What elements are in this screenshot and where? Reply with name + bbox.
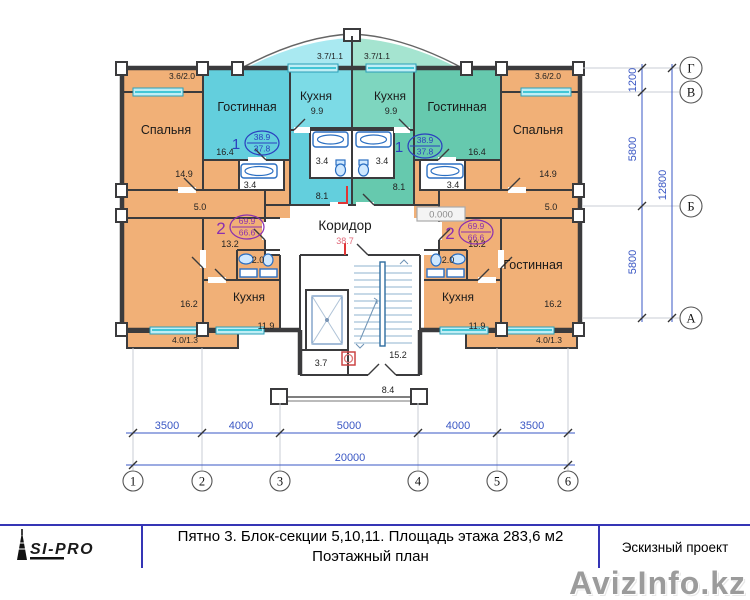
- svg-text:2: 2: [445, 224, 454, 243]
- dim-1200: 1200: [627, 68, 639, 92]
- hall-top-right-area: 8.1: [393, 182, 406, 192]
- svg-text:37.8: 37.8: [417, 147, 434, 157]
- svg-text:69.9: 69.9: [468, 221, 485, 231]
- kitchen-top-left-label: Кухня: [300, 89, 332, 103]
- grid-row-g: Г: [687, 62, 694, 76]
- svg-text:69.9: 69.9: [239, 216, 256, 226]
- living-bottom-right-area: 16.2: [544, 299, 562, 309]
- bathtub-left-apartment: [241, 164, 277, 178]
- svg-text:2: 2: [216, 219, 225, 238]
- hall-small-left-area: 5.0: [194, 202, 207, 212]
- grid-row-v: В: [687, 86, 695, 100]
- dim-3500-1: 3500: [155, 420, 179, 432]
- title-block: SI-PRO Пятно 3. Блок-секции 5,10,11. Пло…: [0, 524, 750, 568]
- grid-row-b: Б: [687, 200, 694, 214]
- grid-col-6: 6: [565, 475, 571, 489]
- svg-text:38.9: 38.9: [254, 132, 271, 142]
- level-mark: 0.000: [417, 207, 465, 221]
- grid-row-a: А: [686, 312, 695, 326]
- svg-text:1: 1: [395, 139, 403, 156]
- title-line-1: Пятно 3. Блок-секции 5,10,11. Площадь эт…: [178, 527, 564, 547]
- watermark: AvizInfo.kz: [569, 565, 746, 600]
- porch-column-left: [271, 389, 287, 404]
- svg-text:66.6: 66.6: [468, 233, 485, 243]
- dim-4000-1: 4000: [229, 420, 253, 432]
- kitchen-top-right-label: Кухня: [374, 89, 406, 103]
- right-dimensions: 1200 5800 5800 12800 Г В Б А: [627, 57, 702, 329]
- balcony-corner-right-area: 3.6/2.0: [535, 71, 561, 81]
- kitchen-bottom-right-label: Кухня: [442, 290, 474, 304]
- bath-small-left-area: 2.0: [252, 255, 265, 265]
- bath-left-area: 3.4: [244, 180, 257, 190]
- grid-col-1: 1: [130, 475, 136, 489]
- drawing-title: Пятно 3. Блок-секции 5,10,11. Площадь эт…: [143, 526, 600, 568]
- kitchen-top-right-area: 9.9: [385, 106, 398, 116]
- company-logo: SI-PRO: [0, 526, 143, 568]
- grid-row-markers: Г В Б А: [680, 57, 702, 329]
- porch-column-right: [411, 389, 427, 404]
- wc-center-left-area: 3.4: [316, 156, 329, 166]
- bath-right-area: 3.4: [447, 180, 460, 190]
- chute-area: 3.7: [315, 358, 328, 368]
- dim-5800-2: 5800: [627, 250, 639, 274]
- toilet-center-right: [359, 160, 369, 176]
- bathtub-right-apartment: [427, 164, 463, 178]
- toilet-center-left: [336, 160, 346, 176]
- bathtub-center-left: [313, 132, 348, 147]
- svg-text:38.9: 38.9: [417, 135, 434, 145]
- wc-center-right-area: 3.4: [376, 156, 389, 166]
- entrance-porch: [271, 389, 427, 404]
- living-top-right-area: 16.4: [468, 147, 486, 157]
- living-bottom-right-label: Гостинная: [503, 258, 562, 272]
- svg-text:1: 1: [232, 136, 240, 153]
- si-pro-logo: SI-PRO: [6, 529, 136, 565]
- project-type: Эскизный проект: [600, 526, 750, 568]
- hall-mid-left-area: 13.2: [221, 239, 239, 249]
- dim-total-20000: 20000: [335, 452, 366, 464]
- grid-col-2: 2: [199, 475, 205, 489]
- living-bottom-left-area: 16.2: [180, 299, 198, 309]
- hall-small-right-area: 5.0: [545, 202, 558, 212]
- svg-text:37.8: 37.8: [254, 144, 271, 154]
- dim-3500-2: 3500: [520, 420, 544, 432]
- bedroom-left-label: Спальня: [141, 123, 191, 137]
- svg-text:0.000: 0.000: [429, 210, 453, 221]
- tower-icon: [17, 532, 27, 560]
- floor-plan: Спальня Спальня 14.9 14.9 3.6/2.0 3.6/2.…: [0, 0, 750, 524]
- kitchen-bottom-left-label: Кухня: [233, 290, 265, 304]
- dim-total-12800: 12800: [657, 170, 669, 201]
- bedroom-right-label: Спальня: [513, 123, 563, 137]
- balcony-top-right-area: 3.7/1.1: [364, 51, 390, 61]
- stair-core: [306, 186, 412, 365]
- corridor-label: Коридор: [318, 218, 371, 233]
- balcony-bottom-right-area: 4.0/1.3: [536, 335, 562, 345]
- hall-top-left-area: 8.1: [316, 191, 329, 201]
- bedroom-left-area: 14.9: [175, 169, 193, 179]
- grid-col-4: 4: [415, 475, 422, 489]
- grid-column-markers: 1 2 3 4 5 6: [123, 471, 578, 491]
- balcony-corner-left-area: 3.6/2.0: [169, 71, 195, 81]
- grid-col-3: 3: [277, 475, 283, 489]
- stair-area: 15.2: [389, 350, 407, 360]
- grid-col-5: 5: [494, 475, 500, 489]
- corridor-area: 38.7: [336, 236, 354, 246]
- living-top-left-label: Гостинная: [217, 100, 276, 114]
- bath-small-right-area: 2.0: [442, 255, 455, 265]
- balcony-top-left-area: 3.7/1.1: [317, 51, 343, 61]
- svg-text:66.6: 66.6: [239, 228, 256, 238]
- kitchen-bottom-left-area: 11.9: [258, 321, 275, 331]
- living-top-right-label: Гостинная: [427, 100, 486, 114]
- stairs: [354, 260, 412, 348]
- kitchen-bottom-right-area: 11.9: [469, 321, 486, 331]
- bedroom-right-area: 14.9: [539, 169, 557, 179]
- kitchen-top-left-area: 9.9: [311, 106, 324, 116]
- logo-text: SI-PRO: [30, 541, 94, 558]
- dim-4000-2: 4000: [446, 420, 470, 432]
- dim-5800-1: 5800: [627, 137, 639, 161]
- dim-5000: 5000: [337, 420, 361, 432]
- bathtub-center-right: [356, 132, 391, 147]
- balcony-bottom-left-area: 4.0/1.3: [172, 335, 198, 345]
- vestibule-area: 8.4: [382, 385, 395, 395]
- bottom-dimensions: 3500 4000 5000 4000 3500 20000 1 2 3 4 5…: [123, 420, 578, 491]
- title-line-2: Поэтажный план: [312, 547, 429, 567]
- drawing-sheet: Спальня Спальня 14.9 14.9 3.6/2.0 3.6/2.…: [0, 0, 750, 600]
